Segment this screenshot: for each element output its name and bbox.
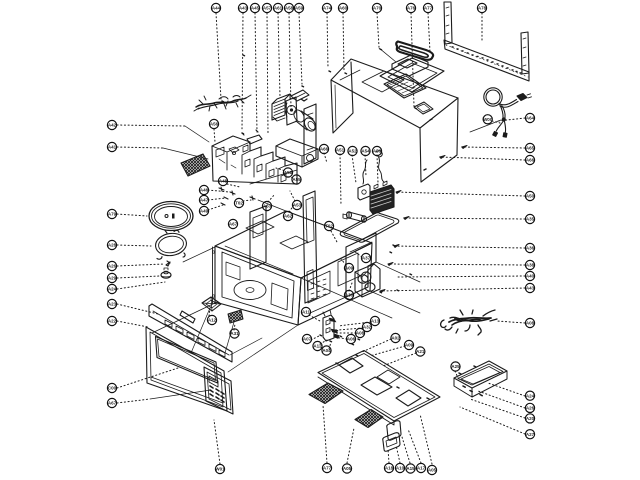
svg-text:A76: A76 [407,6,416,11]
svg-text:A77: A77 [424,6,433,11]
svg-text:A53: A53 [293,203,302,208]
svg-text:A26: A26 [526,406,535,411]
svg-text:A62: A62 [284,214,293,219]
svg-text:A35: A35 [526,217,535,222]
svg-text:A25: A25 [451,364,460,369]
svg-text:A43: A43 [239,6,248,11]
svg-text:A50: A50 [526,194,535,199]
svg-text:A47: A47 [200,198,209,203]
svg-text:A51: A51 [336,148,345,153]
svg-text:A24: A24 [108,287,117,292]
svg-text:W01: W01 [215,467,225,472]
svg-text:A20: A20 [526,416,535,421]
svg-text:A15: A15 [406,466,415,471]
svg-text:A45: A45 [251,6,260,11]
svg-text:A42: A42 [108,123,117,128]
svg-text:A02: A02 [391,336,400,341]
svg-text:A18: A18 [385,466,394,471]
svg-text:A66: A66 [526,158,535,163]
svg-text:A58: A58 [284,170,293,175]
svg-text:W00: W00 [483,117,493,122]
svg-text:A66: A66 [320,147,329,152]
svg-text:A05: A05 [343,466,352,471]
svg-text:A54: A54 [361,149,370,154]
svg-text:A12: A12 [313,344,322,349]
svg-text:T02: T02 [235,201,243,206]
svg-text:A21: A21 [416,349,425,354]
svg-text:A55: A55 [292,177,301,182]
svg-text:A30: A30 [345,293,354,298]
svg-text:A70: A70 [373,6,382,11]
svg-text:A37: A37 [362,256,371,261]
svg-text:A08: A08 [356,331,365,336]
svg-text:A40: A40 [526,274,535,279]
svg-text:A38: A38 [526,263,535,268]
svg-text:C00: C00 [108,386,117,391]
svg-text:A53: A53 [373,149,382,154]
svg-text:A46: A46 [200,188,209,193]
svg-text:A05: A05 [428,468,437,473]
svg-text:A24: A24 [526,393,535,398]
svg-text:A44: A44 [212,6,221,11]
svg-text:A04: A04 [322,348,331,353]
svg-text:A60: A60 [339,6,348,11]
svg-text:A65: A65 [526,146,535,151]
svg-text:A10: A10 [396,466,405,471]
svg-text:A48: A48 [219,179,228,184]
svg-text:A43: A43 [526,286,535,291]
svg-text:A78: A78 [478,6,487,11]
svg-text:A13: A13 [371,319,380,324]
svg-text:A36: A36 [526,246,535,251]
svg-text:A09: A09 [345,266,354,271]
svg-text:A59: A59 [295,6,304,11]
svg-text:A79: A79 [108,212,117,217]
svg-text:A56: A56 [210,122,219,127]
svg-text:A74: A74 [323,6,332,11]
svg-text:T02: T02 [325,224,333,229]
svg-text:A58: A58 [285,6,294,11]
svg-text:A31: A31 [230,331,239,336]
svg-text:A07: A07 [303,337,312,342]
svg-text:A22: A22 [108,319,117,324]
svg-text:A23: A23 [108,302,117,307]
svg-text:A28: A28 [108,243,117,248]
svg-text:A17: A17 [417,466,426,471]
svg-text:A32: A32 [363,325,372,330]
svg-text:A67: A67 [229,222,238,227]
svg-text:A77: A77 [323,466,332,471]
svg-text:A61: A61 [274,6,283,11]
svg-text:A63: A63 [263,204,272,209]
svg-text:A26: A26 [108,264,117,269]
svg-text:A11: A11 [302,310,311,315]
svg-text:A64: A64 [526,116,535,121]
svg-text:A09: A09 [405,343,414,348]
svg-text:A08: A08 [526,321,535,326]
svg-text:A06: A06 [347,337,356,342]
svg-text:A27: A27 [526,432,535,437]
svg-text:A41: A41 [108,145,117,150]
svg-text:A57: A57 [263,6,272,11]
svg-text:A67: A67 [108,401,117,406]
svg-text:A52: A52 [348,149,357,154]
svg-text:A12: A12 [208,318,217,323]
svg-text:A29: A29 [108,276,117,281]
svg-text:A49: A49 [200,209,209,214]
